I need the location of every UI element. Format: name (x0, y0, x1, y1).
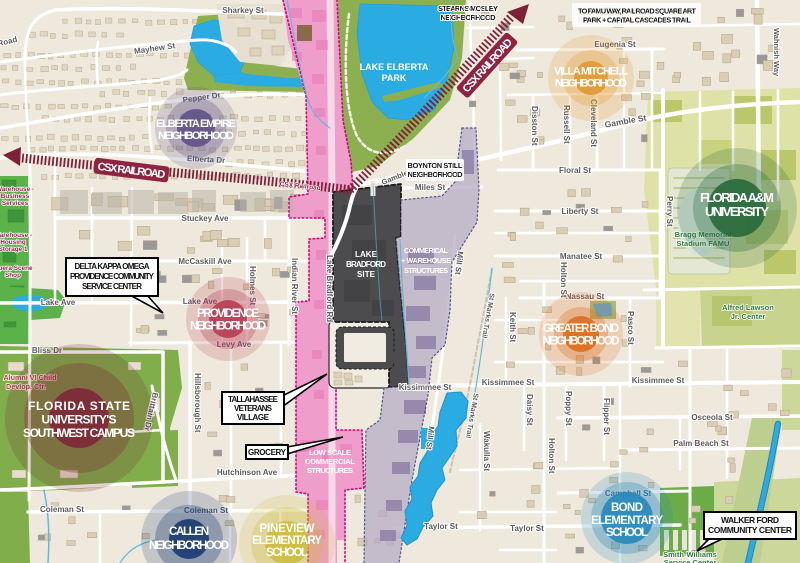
svg-text:BRADFORD: BRADFORD (346, 260, 386, 269)
svg-text:UNIVERSITY: UNIVERSITY (705, 204, 769, 219)
svg-text:Lake Bradford Rd: Lake Bradford Rd (325, 255, 334, 322)
svg-text:PINEVIEW: PINEVIEW (260, 523, 315, 535)
svg-text:Flipper St: Flipper St (602, 398, 611, 435)
svg-text:Jr. Center: Jr. Center (731, 312, 766, 321)
svg-text:BOND: BOND (611, 502, 643, 514)
svg-text:PARK: PARK (382, 73, 407, 83)
svg-text:STRUCTURES: STRUCTURES (307, 466, 353, 475)
svg-text:Keith St: Keith St (508, 312, 517, 343)
svg-text:Warehouse -: Warehouse - (0, 186, 34, 193)
svg-text:Osceola St: Osceola St (691, 413, 733, 422)
svg-text:Floral St: Floral St (559, 166, 591, 175)
svg-text:ELBERTA EMPIRE: ELBERTA EMPIRE (156, 118, 236, 130)
svg-text:LAKE ELBERTA: LAKE ELBERTA (360, 62, 429, 72)
svg-text:Hutchinson Ave: Hutchinson Ave (217, 468, 278, 477)
svg-text:Wakulla St: Wakulla St (482, 431, 491, 471)
svg-text:SERVICE CENTER: SERVICE CENTER (82, 282, 142, 291)
svg-text:NEIGHBORHOOD: NEIGHBORHOOD (158, 130, 234, 142)
svg-text:TALLAHASSEE: TALLAHASSEE (228, 395, 279, 404)
svg-text:Manatee St: Manatee St (560, 252, 603, 261)
svg-text:Warehouse -: Warehouse - (0, 232, 32, 239)
svg-text:CALLEN: CALLEN (169, 526, 209, 538)
svg-text:Opera Scene: Opera Scene (0, 265, 33, 272)
svg-text:Sharkey St: Sharkey St (222, 6, 264, 15)
svg-text:Disston St: Disston St (530, 106, 539, 146)
svg-text:VETERANS: VETERANS (234, 404, 273, 413)
svg-text:Holton St: Holton St (547, 438, 556, 474)
svg-text:Alfred Lawson: Alfred Lawson (722, 303, 774, 312)
svg-text:Lake Ave: Lake Ave (41, 298, 76, 307)
svg-text:+ WAREHOUSE: + WAREHOUSE (401, 256, 451, 265)
svg-text:LAKE: LAKE (355, 250, 378, 259)
svg-text:SOUTHWEST CAMPUS: SOUTHWEST CAMPUS (23, 426, 135, 440)
svg-text:Taylor St: Taylor St (424, 522, 458, 531)
svg-text:NEIGHBORHOOD: NEIGHBORHOOD (408, 170, 464, 179)
svg-text:Housing: Housing (0, 239, 26, 246)
svg-text:Hillsborough St: Hillsborough St (193, 373, 202, 433)
svg-text:Indian River St: Indian River St (290, 258, 299, 314)
svg-text:TO FAMU WAY, RAILROAD SQUARE A: TO FAMU WAY, RAILROAD SQUARE ART (578, 7, 696, 16)
svg-text:Poppy St: Poppy St (564, 391, 573, 426)
svg-text:Storage 1: Storage 1 (0, 246, 28, 253)
svg-text:NEIGHBORHOOD: NEIGHBORHOOD (149, 540, 229, 552)
svg-text:ELEMENTARY: ELEMENTARY (591, 515, 663, 527)
svg-text:GROCERY: GROCERY (248, 448, 287, 457)
svg-text:Stuckey Ave: Stuckey Ave (182, 214, 230, 223)
svg-text:Miles St: Miles St (415, 183, 446, 192)
svg-text:PARK + CAPITAL CASCADES TRAIL: PARK + CAPITAL CASCADES TRAIL (583, 16, 691, 25)
svg-text:BOYNTON STILL: BOYNTON STILL (408, 161, 463, 170)
svg-text:VILLAGE: VILLAGE (237, 413, 270, 422)
svg-text:SITE: SITE (357, 270, 376, 279)
svg-text:Pasco St: Pasco St (626, 311, 635, 345)
svg-text:NEIGHBORHOOD: NEIGHBORHOOD (441, 13, 497, 22)
svg-text:COMMERCIAL: COMMERCIAL (305, 457, 355, 466)
svg-text:Liberty St: Liberty St (562, 207, 599, 216)
svg-text:STEARNS-MOSLEY: STEARNS-MOSLEY (438, 4, 498, 13)
svg-text:Taylor St: Taylor St (510, 524, 544, 533)
svg-text:LOW SCALE: LOW SCALE (309, 448, 351, 457)
svg-text:PROVIDENCE COMMUNITY: PROVIDENCE COMMUNITY (70, 272, 155, 281)
svg-text:SCHOOL: SCHOOL (606, 527, 648, 539)
svg-text:Coleman St: Coleman St (40, 505, 84, 514)
svg-text:Services: Services (2, 200, 29, 207)
svg-text:FLORIDA A&M: FLORIDA A&M (700, 190, 774, 205)
svg-text:GREATER BOND: GREATER BOND (543, 323, 619, 335)
svg-text:Daisy St: Daisy St (525, 394, 534, 426)
svg-text:SCHOOL: SCHOOL (266, 547, 308, 559)
svg-text:DELTA KAPPA OMEGA: DELTA KAPPA OMEGA (75, 262, 150, 271)
svg-text:UNIVERSITY'S: UNIVERSITY'S (42, 413, 117, 427)
svg-text:COMMERICAL: COMMERICAL (404, 246, 449, 255)
svg-text:Kissimmee St: Kissimmee St (399, 383, 452, 392)
svg-text:Kissimmee St: Kissimmee St (632, 376, 685, 385)
svg-text:STRUCTURES: STRUCTURES (404, 266, 448, 275)
svg-text:WALKER FORD: WALKER FORD (721, 515, 779, 525)
svg-text:COMMUNITY CENTER: COMMUNITY CENTER (708, 525, 792, 535)
svg-text:Kissimmee St: Kissimmee St (482, 378, 535, 387)
svg-text:Wahnish Way: Wahnish Way (772, 28, 781, 77)
svg-text:NEIGHBORHOOD: NEIGHBORHOOD (543, 336, 620, 348)
svg-text:NEIGHBORHOOD: NEIGHBORHOOD (190, 321, 266, 333)
svg-text:Perry St: Perry St (665, 196, 674, 227)
svg-text:ELEMENTARY: ELEMENTARY (252, 535, 322, 547)
svg-text:Shop: Shop (5, 272, 21, 279)
svg-text:Holton St: Holton St (559, 262, 568, 298)
svg-text:PROVIDENCE: PROVIDENCE (197, 308, 259, 320)
svg-text:Palm Beach St: Palm Beach St (673, 439, 729, 448)
svg-text:McCaskill Ave: McCaskill Ave (178, 257, 232, 266)
svg-text:NEIGHBORHOOD: NEIGHBORHOOD (555, 78, 627, 90)
svg-text:Business: Business (1, 193, 30, 200)
svg-text:VILLA MITCHELL: VILLA MITCHELL (554, 66, 628, 78)
svg-text:FLORIDA STATE: FLORIDA STATE (28, 399, 130, 413)
svg-text:Service Center: Service Center (664, 558, 717, 563)
